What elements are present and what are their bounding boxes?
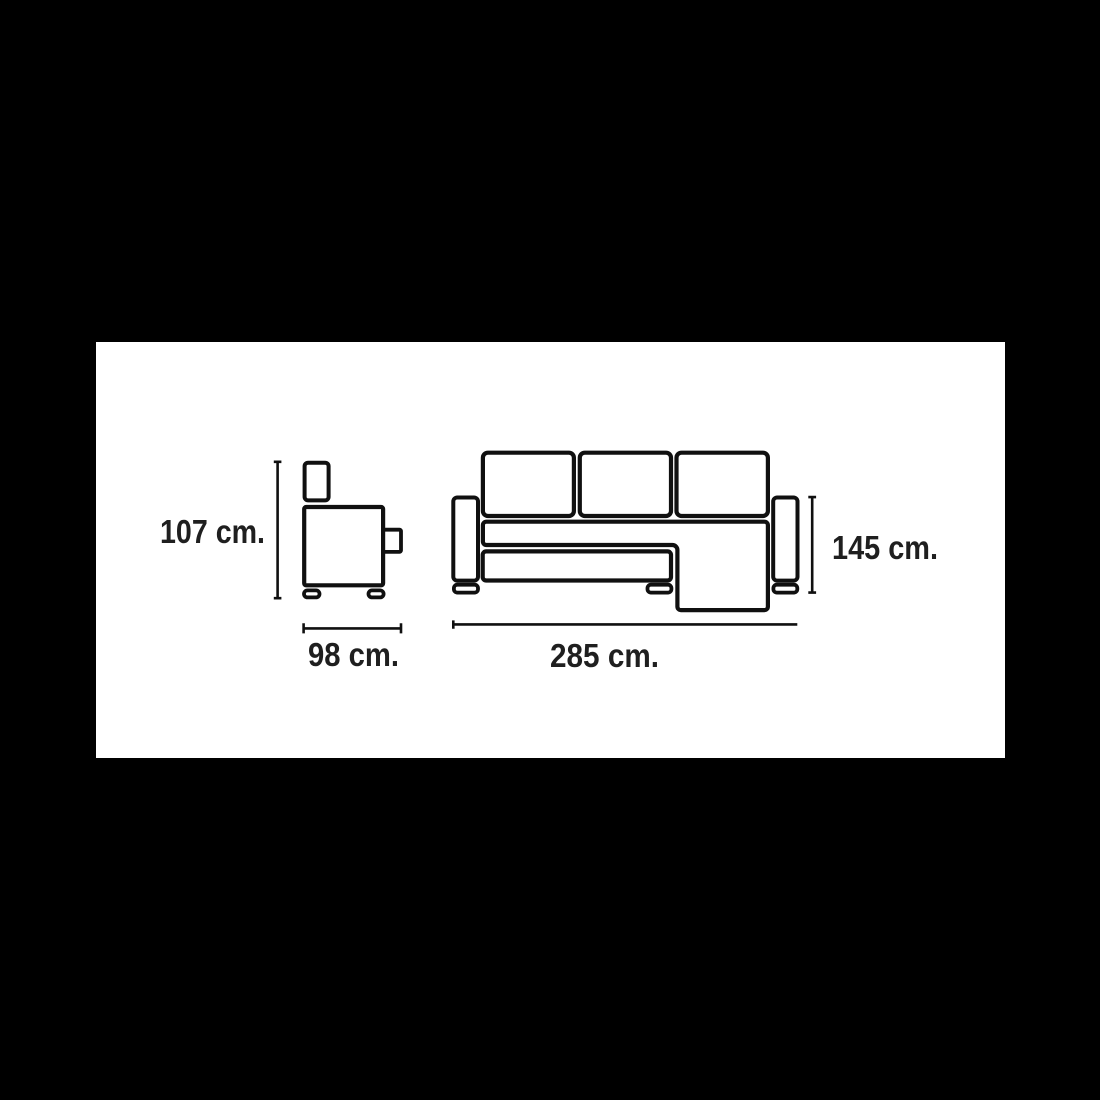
svg-text:145 cm.: 145 cm.	[832, 529, 938, 566]
svg-text:285 cm.: 285 cm.	[550, 637, 659, 674]
svg-text:98 cm.: 98 cm.	[308, 636, 399, 673]
svg-text:107 cm.: 107 cm.	[160, 513, 265, 550]
